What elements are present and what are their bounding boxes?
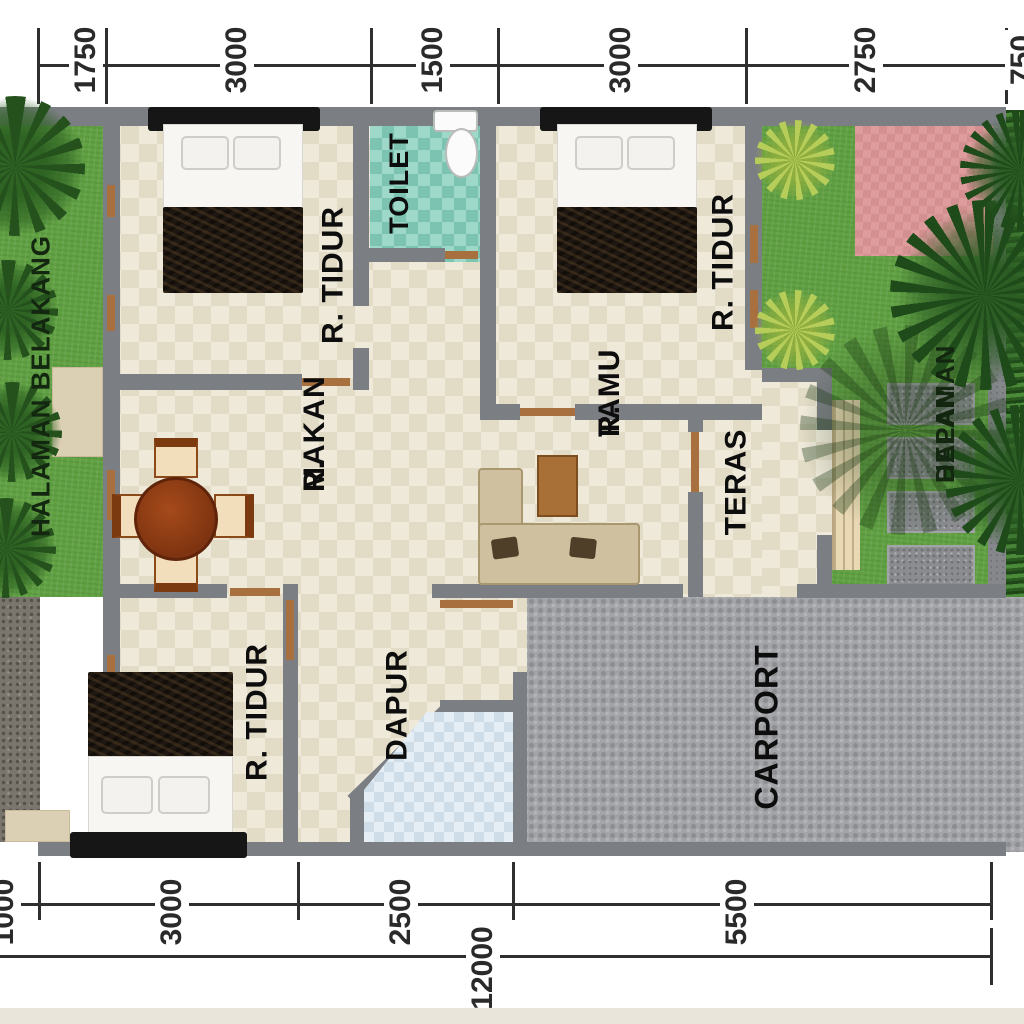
toilet-bottom-wall xyxy=(369,248,445,262)
dimension-tick xyxy=(37,28,40,104)
living-terrace-wall xyxy=(688,404,703,432)
floor-plan-canvas: R. TIDUR TOILET R. TIDUR R. MAKAN R. TAM… xyxy=(0,0,1024,1024)
living-terrace-wall xyxy=(688,492,703,597)
dim-bottom-2500: 2500 xyxy=(384,874,418,951)
bedroom1-right-wall xyxy=(353,348,369,390)
dim-top-2750: 2750 xyxy=(849,22,883,99)
dining-chair xyxy=(154,438,198,478)
garden-shrub xyxy=(755,120,835,200)
dim-bottom-5500: 5500 xyxy=(720,874,754,951)
left-window-sill xyxy=(107,295,115,331)
carport-door-sill xyxy=(440,600,513,608)
sofa-pillow xyxy=(569,537,597,560)
living-label-line2: TAMU xyxy=(593,349,626,437)
bed-blanket xyxy=(163,207,303,293)
dining-chair xyxy=(214,494,254,538)
bedroom1-bottom-wall xyxy=(120,374,302,390)
side-cabinet xyxy=(537,455,578,517)
corner-path-patch xyxy=(5,810,70,842)
toilet-right-wall xyxy=(480,126,496,420)
carport-label: CARPORT xyxy=(749,644,784,809)
dim-total-12000: 12000 xyxy=(466,921,500,1014)
terrace-label: TERAS xyxy=(720,429,753,536)
bedroom2-window-sill xyxy=(750,225,758,263)
dimension-tick xyxy=(745,28,748,104)
bed-pillow xyxy=(181,136,229,170)
dimension-tick xyxy=(370,28,373,104)
frontyard-label-line2: DEPAN xyxy=(931,389,960,483)
bed-blanket xyxy=(557,207,697,293)
carport-top-wall xyxy=(797,584,1006,598)
kitchen-right-wall xyxy=(513,672,527,842)
kitchen-counter-top-wall xyxy=(440,700,527,712)
gravel-strip xyxy=(0,597,40,842)
kitchen-label: DAPUR xyxy=(381,649,414,761)
toilet-door-sill xyxy=(445,251,478,259)
dimension-tick xyxy=(38,862,41,920)
dim-top-3000a: 3000 xyxy=(220,22,254,99)
bed-blanket xyxy=(88,672,233,758)
dining-table xyxy=(134,477,218,561)
kitchen-door-sill xyxy=(286,600,294,660)
dimension-tick xyxy=(497,28,500,104)
bedroom3-label: R. TIDUR xyxy=(241,643,274,781)
stepping-stone xyxy=(887,545,975,587)
bed-pillow xyxy=(101,776,153,814)
bed-footboard xyxy=(70,832,247,858)
dimension-tick xyxy=(990,862,993,920)
left-window-sill xyxy=(107,185,115,217)
terrace-door-sill xyxy=(691,432,699,492)
bed-pillow xyxy=(627,136,675,170)
dimension-tick xyxy=(105,28,108,104)
bedroom3-door-sill xyxy=(230,588,280,596)
dim-bottom-1000: 1000 xyxy=(0,874,21,951)
bedroom2-bottom-wall xyxy=(496,404,520,420)
dimension-tick xyxy=(512,862,515,920)
bed-pillow xyxy=(575,136,623,170)
bedroom2-label: R. TIDUR xyxy=(707,193,740,331)
garden-shrub xyxy=(755,290,835,370)
bedroom2-door-sill xyxy=(520,408,575,416)
dim-bottom-3000: 3000 xyxy=(155,874,189,951)
bed-pillow xyxy=(158,776,210,814)
bottom-dimension-line xyxy=(0,903,990,906)
dim-top-1750: 1750 xyxy=(69,22,103,99)
dim-top-750: 750 xyxy=(1005,30,1024,90)
terrace-top-wall xyxy=(762,368,817,382)
dim-top-3000b: 3000 xyxy=(604,22,638,99)
toilet-bowl xyxy=(445,128,478,178)
dimension-tick xyxy=(297,862,300,920)
carport-top-wall xyxy=(432,584,683,598)
bedroom1-right-wall xyxy=(353,126,369,306)
bed-pillow xyxy=(233,136,281,170)
sofa-pillow xyxy=(491,536,520,559)
bedroom1-label: R. TIDUR xyxy=(317,206,350,344)
toilet-label: TOILET xyxy=(385,132,415,234)
backyard-label: HALAMAN BELAKANG xyxy=(27,235,56,537)
dining-label-line2: MAKAN xyxy=(298,375,331,492)
bottom-margin-strip xyxy=(0,1008,1024,1024)
dimension-tick xyxy=(990,928,993,985)
dim-top-1500: 1500 xyxy=(416,22,450,99)
